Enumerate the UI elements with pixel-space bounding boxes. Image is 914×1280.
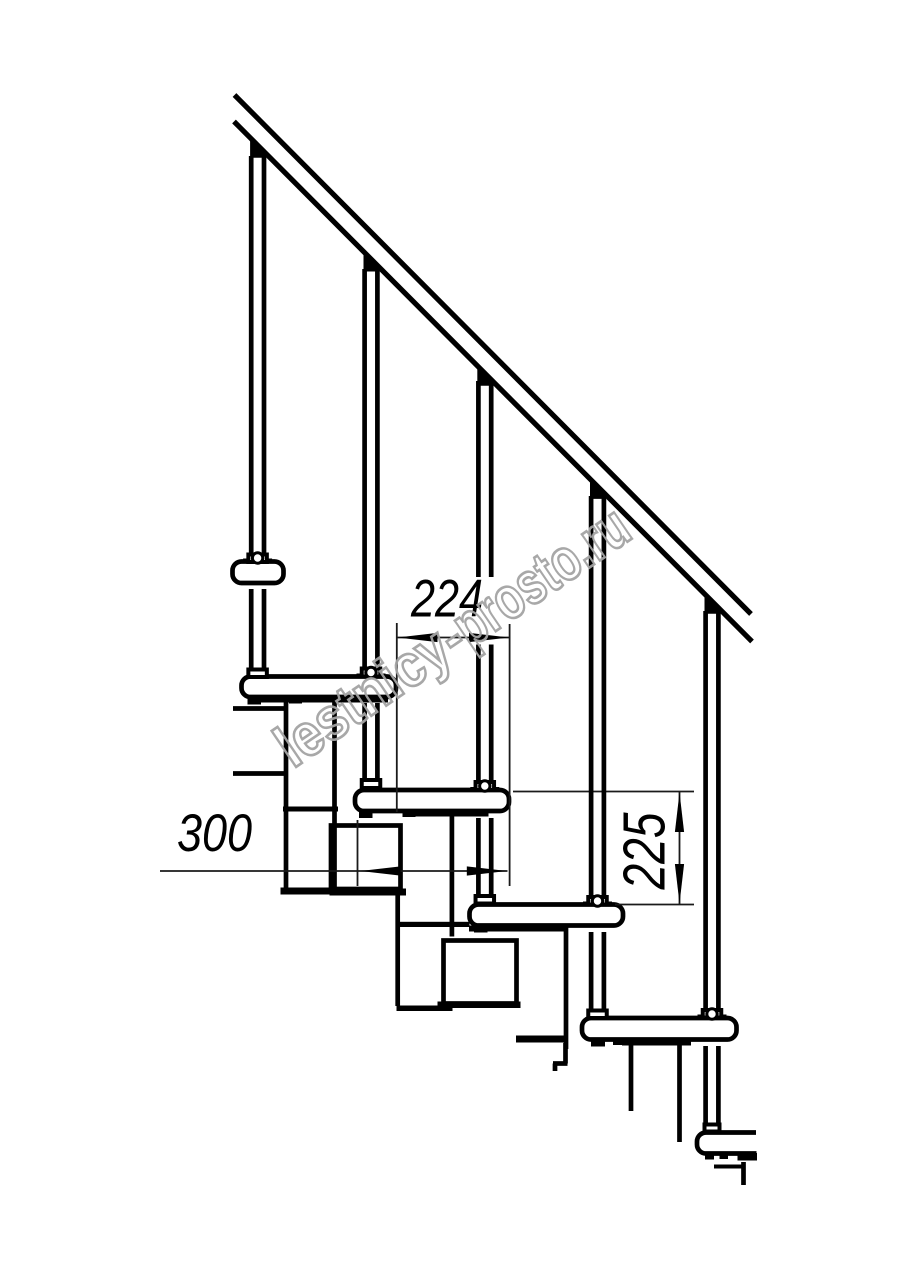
svg-text:225: 225 xyxy=(612,812,678,890)
svg-text:300: 300 xyxy=(177,804,252,863)
